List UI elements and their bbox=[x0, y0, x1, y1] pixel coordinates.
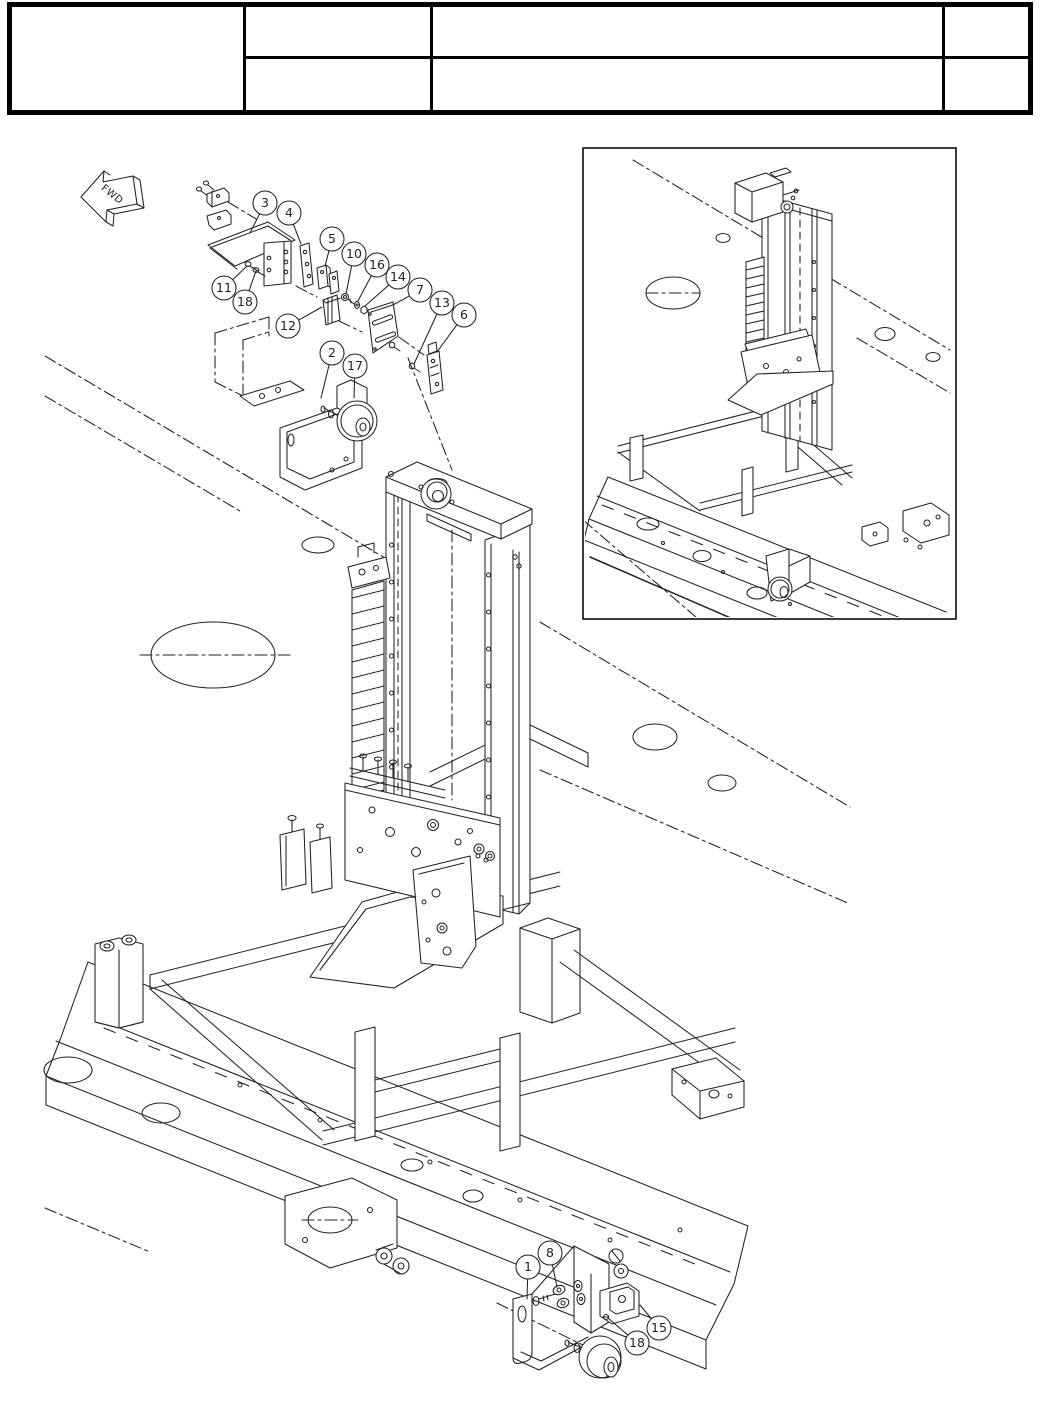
callout-number: 15 bbox=[651, 1320, 667, 1335]
callout-number: 2 bbox=[328, 345, 336, 360]
callout-balloon-5: 5 bbox=[320, 227, 344, 266]
inset-caster bbox=[766, 549, 810, 601]
screws-13 bbox=[389, 342, 420, 372]
main-assembly bbox=[44, 462, 748, 1369]
callout-leader bbox=[249, 271, 256, 291]
callout-number: 17 bbox=[347, 358, 363, 373]
callout-leader bbox=[321, 365, 329, 398]
callout-leader bbox=[437, 325, 457, 352]
part-4-brackets bbox=[264, 241, 313, 287]
part-7-plate bbox=[368, 302, 398, 353]
inset-mast bbox=[728, 168, 833, 450]
callout-number: 3 bbox=[261, 195, 269, 210]
switch-part-15 bbox=[600, 1283, 639, 1324]
caster-wheel bbox=[565, 1336, 621, 1378]
callout-number: 4 bbox=[285, 205, 293, 220]
cable-chain bbox=[348, 543, 390, 806]
callout-number: 8 bbox=[546, 1245, 554, 1260]
clip-parts bbox=[197, 181, 257, 230]
callout-number: 16 bbox=[369, 257, 385, 272]
callout-number: 6 bbox=[460, 307, 468, 322]
callout-layer: 3451016147136111812217181815 bbox=[212, 191, 671, 1355]
callout-leader bbox=[358, 276, 371, 301]
callout-leader bbox=[233, 266, 247, 280]
fwd-label: FWD bbox=[99, 183, 125, 207]
inset-detail-view bbox=[583, 148, 956, 619]
callout-balloon-18: 18 bbox=[233, 271, 257, 314]
callout-number: 1 bbox=[524, 1259, 532, 1274]
callout-balloon-2: 2 bbox=[320, 341, 344, 398]
part-12-block bbox=[323, 295, 340, 325]
part-6-bar bbox=[427, 342, 443, 394]
callout-leader bbox=[393, 296, 410, 305]
callout-leader bbox=[365, 285, 389, 306]
callout-balloon-10: 10 bbox=[342, 242, 366, 294]
callout-number: 10 bbox=[346, 246, 362, 261]
callout-number: 18 bbox=[629, 1335, 645, 1350]
inset-rail-blocks bbox=[862, 503, 949, 549]
callout-leader bbox=[527, 1279, 528, 1299]
fwd-arrow-icon: FWD bbox=[81, 171, 144, 226]
callout-number: 14 bbox=[390, 269, 406, 284]
callout-balloon-17: 17 bbox=[343, 354, 367, 398]
inset-sled bbox=[584, 477, 946, 619]
callout-number: 11 bbox=[216, 280, 232, 295]
callout-leader bbox=[293, 224, 301, 244]
callout-number: 5 bbox=[328, 231, 336, 246]
callout-balloon-1: 1 bbox=[516, 1255, 540, 1299]
frame-end-block bbox=[672, 1058, 744, 1119]
callout-leader bbox=[346, 266, 352, 294]
frame-post bbox=[95, 935, 143, 1028]
callout-number: 7 bbox=[416, 282, 424, 297]
callout-leader bbox=[298, 307, 322, 320]
callout-number: 13 bbox=[434, 295, 450, 310]
callout-leader bbox=[325, 251, 329, 266]
parts-cluster bbox=[197, 181, 444, 490]
callout-balloon-12: 12 bbox=[276, 307, 322, 338]
part-5-clips bbox=[317, 265, 339, 294]
callout-leader bbox=[640, 1305, 651, 1319]
callout-number: 18 bbox=[237, 294, 253, 309]
manual-page: { "page": { "type": "exploded-parts-diag… bbox=[0, 0, 1045, 1418]
callout-leader bbox=[354, 378, 355, 398]
callout-number: 12 bbox=[280, 318, 296, 333]
fasteners-10-16-14 bbox=[342, 294, 368, 315]
exploded-diagram: FWD bbox=[0, 0, 1045, 1418]
